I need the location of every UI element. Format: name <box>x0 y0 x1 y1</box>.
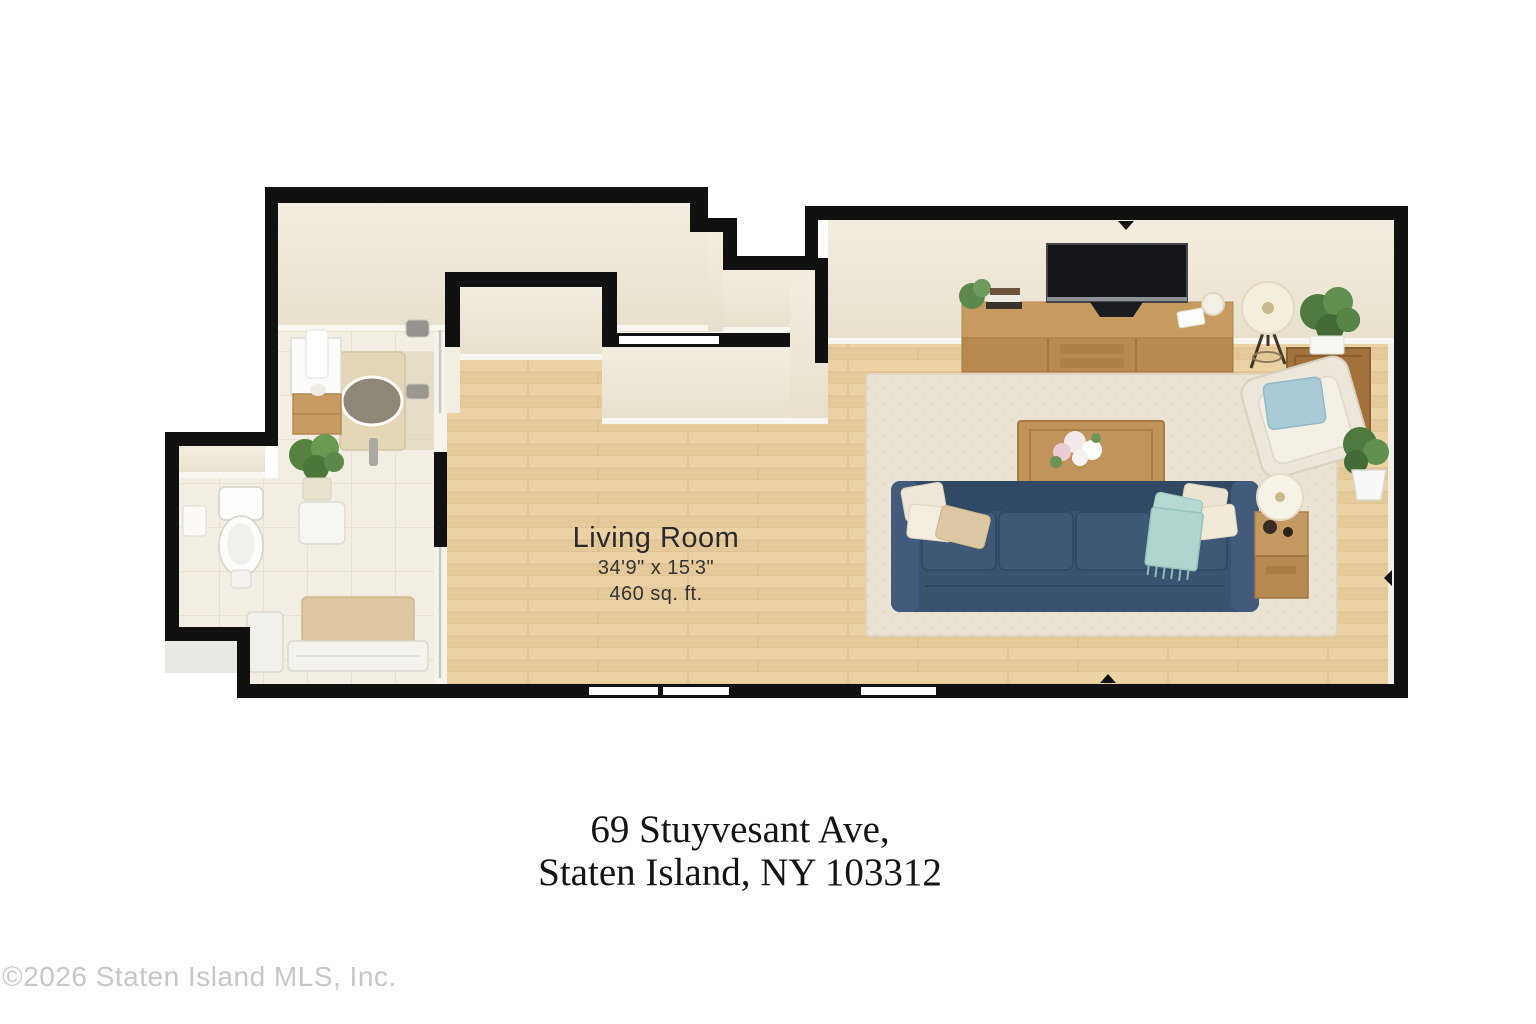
books <box>986 302 1022 309</box>
bath-mat <box>302 597 414 643</box>
shower-drain <box>342 377 402 425</box>
shower-valve <box>406 384 429 399</box>
property-address: 69 Stuyvesant Ave, Staten Island, NY 103… <box>340 808 1140 894</box>
chair <box>247 612 283 672</box>
towel <box>306 330 328 378</box>
decor-object <box>1283 527 1293 537</box>
sink <box>310 384 326 396</box>
mls-copyright: ©2026 Staten Island MLS, Inc. <box>2 960 397 994</box>
sofa <box>891 481 1259 612</box>
room-label: Living Room 34'9" x 15'3" 460 sq. ft. <box>496 521 816 607</box>
stool <box>299 502 345 544</box>
vanity <box>291 330 341 434</box>
room-area: 460 sq. ft. <box>496 581 816 607</box>
shower-wall-strip <box>404 352 434 450</box>
candle <box>1202 293 1224 315</box>
floor-plan-page: Living Room 34'9" x 15'3" 460 sq. ft. 69… <box>0 0 1536 1024</box>
room-dimensions: 34'9" x 15'3" <box>496 555 816 581</box>
decor-object <box>1263 520 1277 534</box>
address-line-1: 69 Stuyvesant Ave, <box>340 808 1140 851</box>
exterior-step <box>165 641 237 673</box>
room-name: Living Room <box>496 521 816 555</box>
faucet <box>369 438 378 466</box>
toilet-paper-holder <box>183 506 206 536</box>
closet-nook <box>460 287 602 360</box>
shower-head <box>406 320 429 337</box>
accent-pillow <box>1263 377 1327 431</box>
address-line-2: Staten Island, NY 103312 <box>340 851 1140 894</box>
side-table <box>1255 474 1308 598</box>
